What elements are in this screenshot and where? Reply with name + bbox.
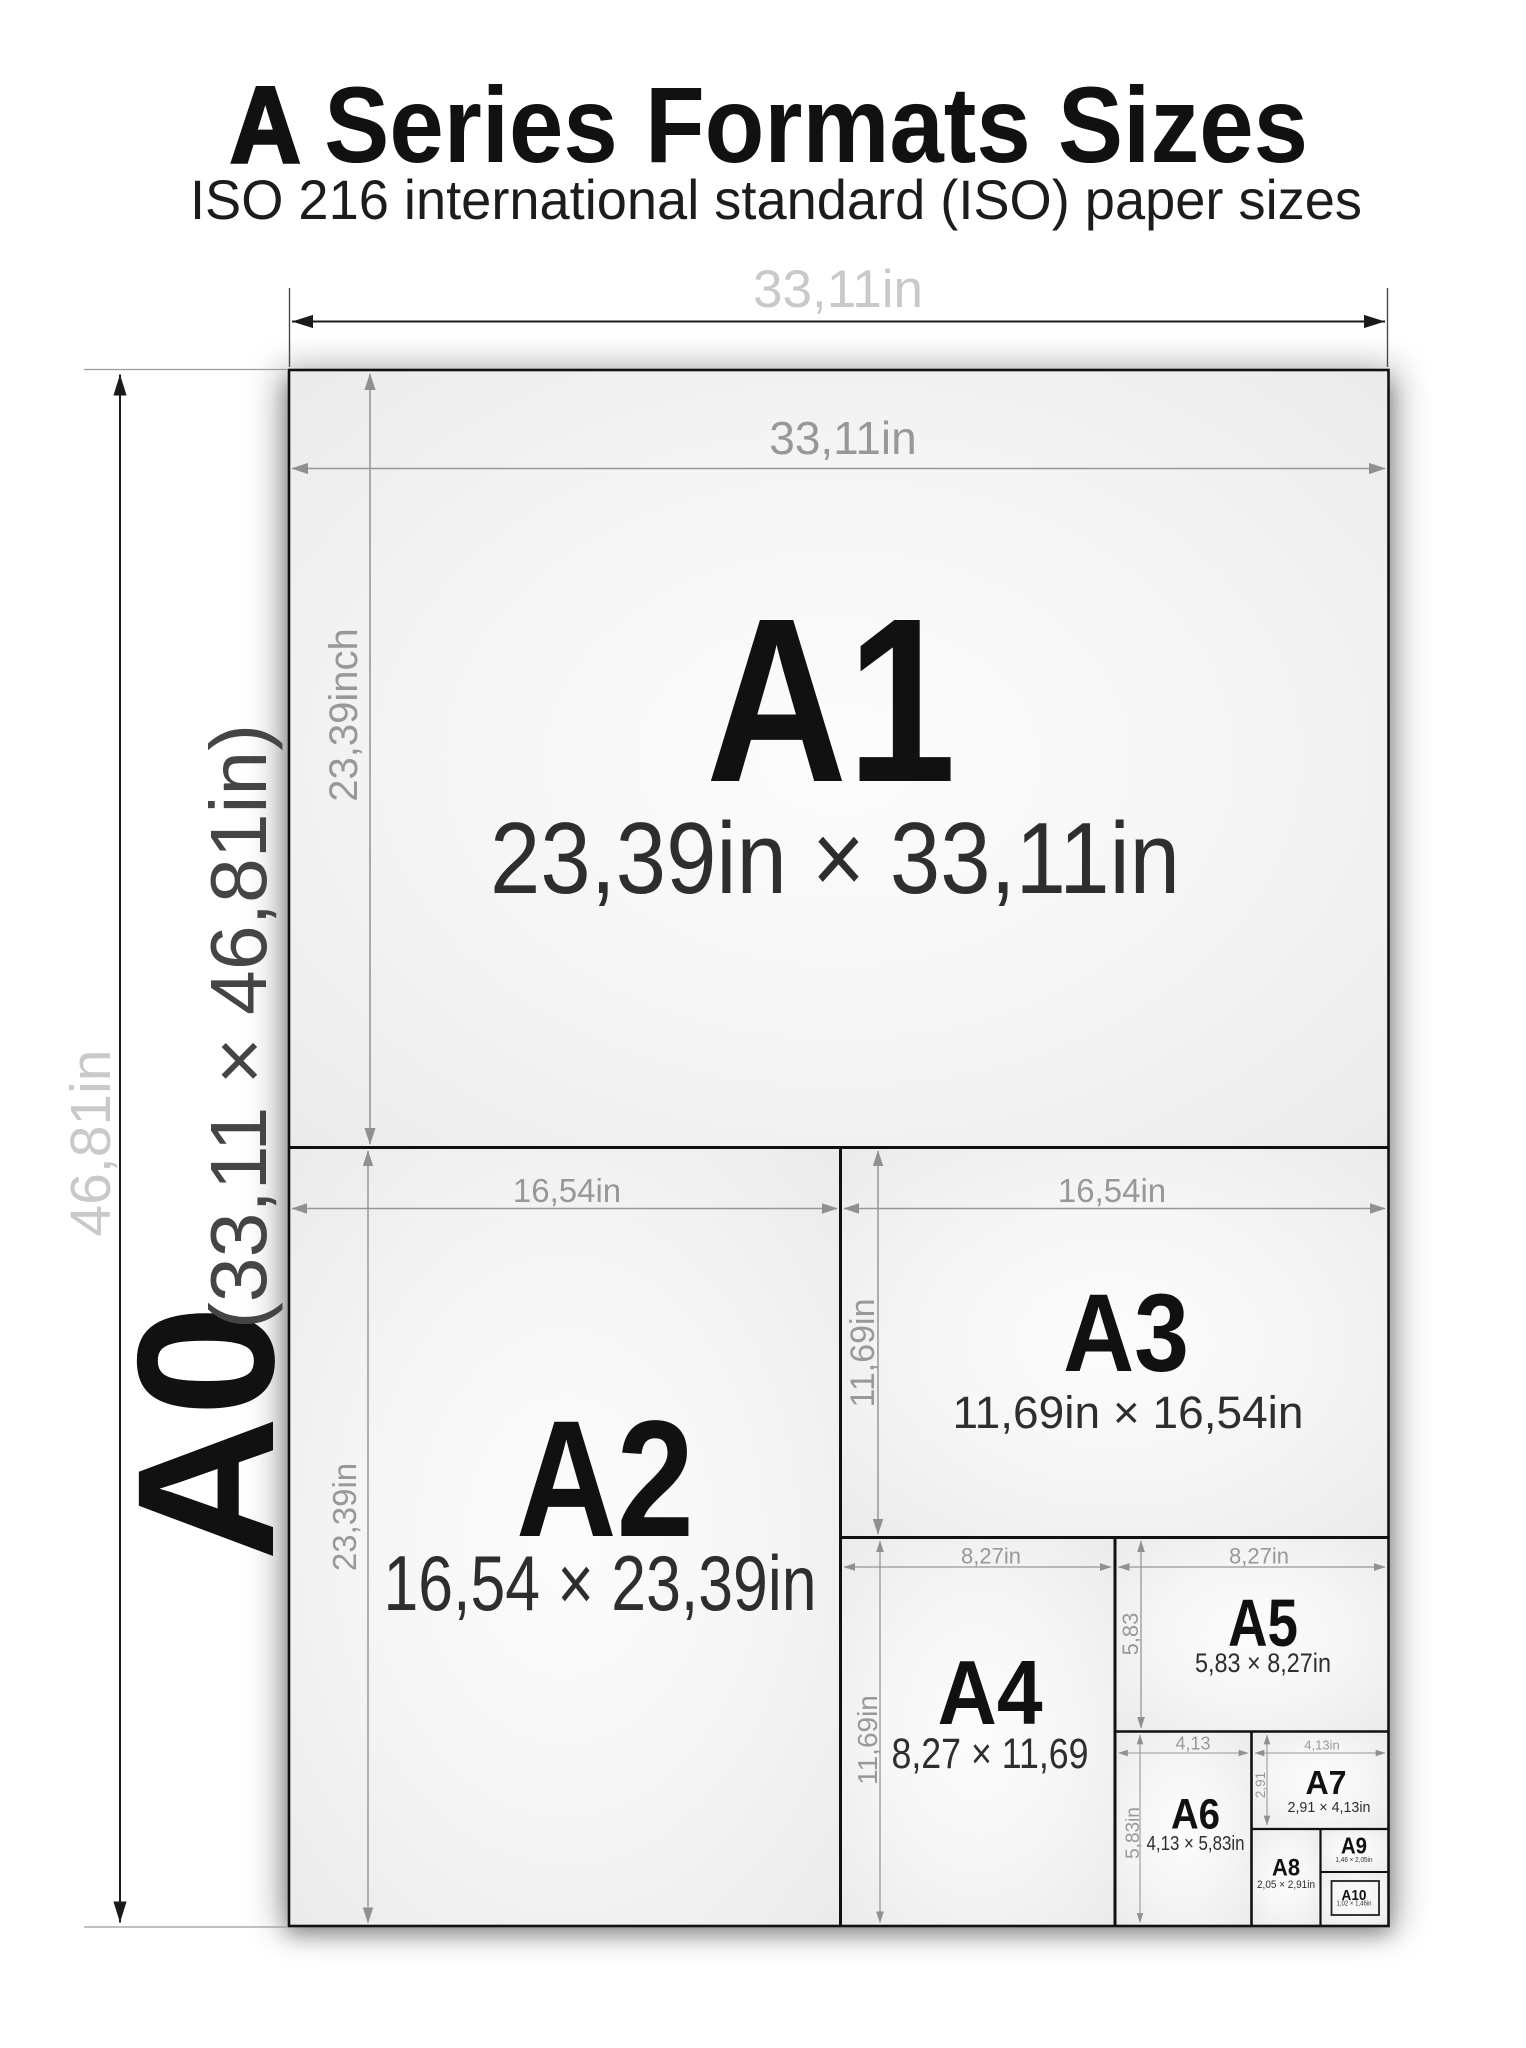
svg-text:A8: A8: [1272, 1855, 1300, 1882]
svg-text:1,46 × 2,05in: 1,46 × 2,05in: [1336, 1855, 1373, 1864]
svg-text:11,69in: 11,69in: [852, 1695, 883, 1785]
svg-text:2,05 × 2,91in: 2,05 × 2,91in: [1257, 1879, 1315, 1891]
svg-text:8,27in: 8,27in: [961, 1544, 1021, 1569]
svg-text:ISO 216 international standard: ISO 216 international standard (ISO) pap…: [190, 168, 1362, 231]
svg-text:16,54in: 16,54in: [513, 1172, 621, 1209]
svg-text:5,83in: 5,83in: [1123, 1807, 1144, 1859]
svg-text:A3: A3: [1063, 1272, 1189, 1395]
svg-text:5,83: 5,83: [1118, 1613, 1143, 1656]
svg-text:(33,11 × 46,81in): (33,11 × 46,81in): [194, 724, 283, 1329]
svg-text:16,54 × 23,39in: 16,54 × 23,39in: [384, 1539, 817, 1627]
svg-text:11,69in × 16,54in: 11,69in × 16,54in: [953, 1387, 1304, 1438]
svg-text:A7: A7: [1306, 1764, 1347, 1801]
svg-text:33,11in: 33,11in: [769, 412, 917, 464]
svg-text:16,54in: 16,54in: [1058, 1172, 1166, 1209]
svg-text:A1: A1: [706, 569, 956, 831]
svg-text:A0: A0: [97, 1305, 315, 1561]
svg-text:A4: A4: [938, 1643, 1043, 1744]
svg-text:8,27 × 11,69: 8,27 × 11,69: [892, 1730, 1089, 1778]
svg-text:2,91: 2,91: [1253, 1772, 1268, 1798]
svg-text:2,91 × 4,13in: 2,91 × 4,13in: [1288, 1799, 1371, 1816]
svg-text:11,69in: 11,69in: [844, 1298, 882, 1407]
svg-text:33,11in: 33,11in: [753, 260, 923, 319]
svg-text:4,13 × 5,83in: 4,13 × 5,83in: [1147, 1832, 1245, 1855]
svg-text:A Series Formats Sizes: A Series Formats Sizes: [230, 64, 1308, 185]
svg-text:8,27in: 8,27in: [1229, 1544, 1289, 1569]
svg-text:5,83 × 8,27in: 5,83 × 8,27in: [1195, 1648, 1331, 1678]
svg-text:4,13: 4,13: [1175, 1734, 1210, 1754]
svg-text:23,39in × 33,11in: 23,39in × 33,11in: [490, 803, 1180, 915]
svg-text:1,02 × 1,46in: 1,02 × 1,46in: [1337, 1901, 1372, 1908]
svg-text:46,81in: 46,81in: [59, 1049, 123, 1236]
svg-text:23,39inch: 23,39inch: [322, 628, 366, 801]
svg-text:4,13in: 4,13in: [1304, 1738, 1339, 1753]
svg-text:23,39in: 23,39in: [326, 1463, 363, 1571]
